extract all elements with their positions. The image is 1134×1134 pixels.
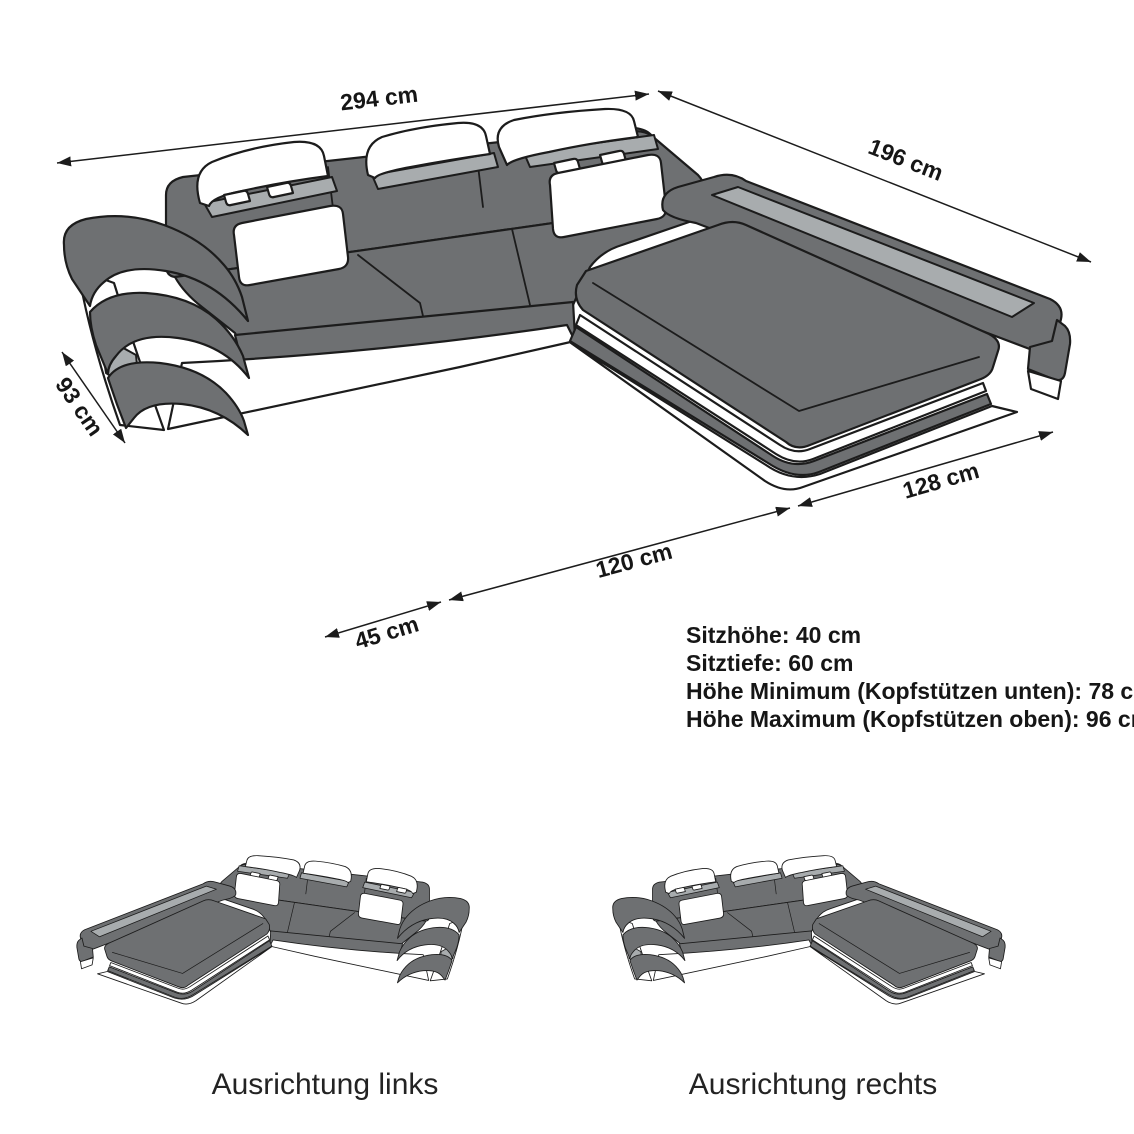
specs-block: Sitzhöhe: 40 cm Sitztiefe: 60 cm Höhe Mi… [686, 621, 1134, 733]
dimension-label-front-armrest: 45 cm [352, 610, 422, 654]
dimension-label-total-width: 294 cm [339, 81, 419, 116]
variant-right-sofa-drawing [613, 856, 1005, 1004]
spec-height-max: Höhe Maximum (Kopfstützen oben): 96 cm [686, 705, 1134, 733]
spec-height-min: Höhe Minimum (Kopfstützen unten): 78 cm [686, 677, 1134, 705]
variant-left-caption: Ausrichtung links [212, 1068, 439, 1102]
dimension-label-front-seat: 120 cm [593, 538, 675, 583]
dimension-front-seat: 120 cm [449, 508, 790, 600]
sofa-dimension-diagram: 294 cm 196 cm 93 cm 45 cm 120 cm 128 cm [0, 0, 1134, 1134]
variant-left-sofa-drawing [77, 856, 469, 1004]
diagram-canvas: 294 cm 196 cm 93 cm 45 cm 120 cm 128 cm [0, 0, 1134, 1134]
variant-right-caption: Ausrichtung rechts [689, 1068, 937, 1102]
spec-seat-depth: Sitztiefe: 60 cm [686, 649, 1134, 677]
dimension-front-armrest: 45 cm [325, 602, 441, 654]
spec-seat-height: Sitzhöhe: 40 cm [686, 621, 1134, 649]
